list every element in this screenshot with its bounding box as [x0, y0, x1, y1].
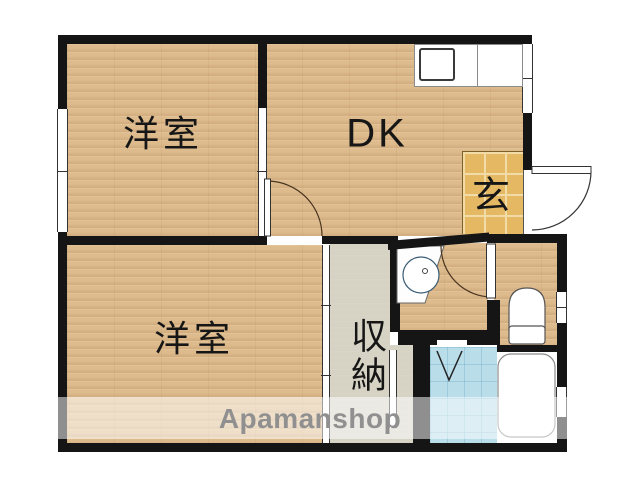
floor-washroom — [397, 243, 488, 330]
label-storage: 収納 — [340, 317, 392, 395]
label-dining-kitchen: DK — [346, 112, 408, 157]
wall-between-top-rooms — [258, 44, 267, 108]
sliding-door-western-dk — [258, 108, 267, 236]
window-tick-icon — [57, 171, 68, 172]
wall-between-western-rooms — [58, 236, 267, 245]
entrance-door-arc — [532, 171, 591, 230]
wall-dk-storage — [322, 236, 398, 244]
wall-toilet-bottom — [497, 345, 567, 352]
label-western-room-bottom: 洋室 — [154, 310, 234, 362]
window-tick-icon — [522, 78, 533, 79]
floor-plan: 洋室 DK 玄 洋室 収納 Apamanshop — [0, 0, 617, 480]
doorway-entrance — [523, 170, 532, 234]
wall-step-right — [487, 234, 567, 243]
wall-bottom — [58, 443, 567, 452]
doorway-dk-western-bottom — [267, 236, 322, 245]
label-entrance: 玄 — [472, 165, 510, 220]
window-tick-icon — [257, 171, 267, 172]
window-tick-icon — [321, 305, 331, 306]
watermark-text: Apamanshop — [219, 403, 401, 435]
kitchen-sink — [419, 48, 455, 81]
window-tick-icon — [556, 307, 567, 308]
label-western-room-top: 洋室 — [123, 105, 203, 157]
wall-right-upper — [523, 113, 532, 170]
window-tick-icon — [321, 375, 331, 376]
wall-top — [58, 35, 532, 44]
kitchen-counter-divider — [477, 44, 478, 87]
wall-left-upper — [58, 35, 67, 109]
floor-toilet-room — [494, 243, 557, 345]
wall-washroom-toilet — [487, 300, 500, 345]
entrance-door-leaf — [532, 167, 591, 174]
doorway-bathroom — [437, 340, 467, 346]
